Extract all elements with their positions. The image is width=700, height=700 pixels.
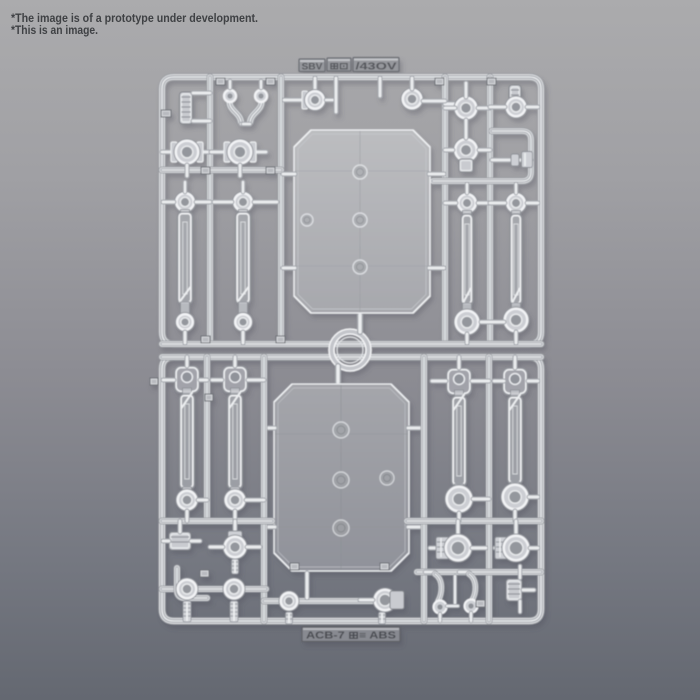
svg-text:⊞⊡: ⊞⊡ xyxy=(330,61,349,71)
svg-text:*This is an image.: *This is an image. xyxy=(11,23,98,37)
svg-text:ACB-7 ⊞≡ ABS: ACB-7 ⊞≡ ABS xyxy=(306,631,396,642)
svg-text:/43OV: /43OV xyxy=(356,62,397,73)
svg-text:SBV: SBV xyxy=(302,62,323,72)
